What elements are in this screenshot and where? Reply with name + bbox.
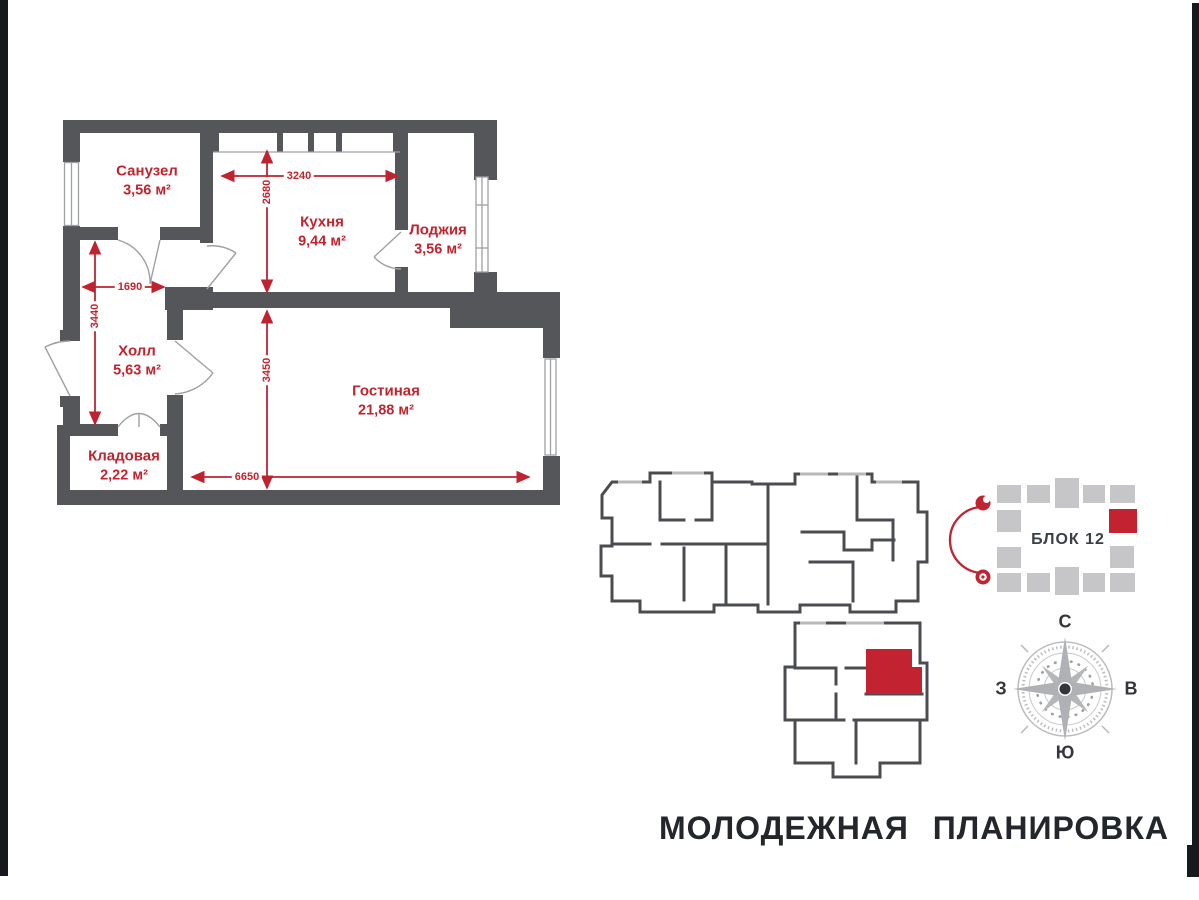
dimension-1690: 1690 bbox=[115, 281, 145, 293]
storage-door bbox=[118, 413, 160, 427]
room-area: 3,56 м² bbox=[409, 240, 467, 258]
room-name: Кладовая bbox=[88, 448, 160, 467]
room-area: 2,22 м² bbox=[88, 466, 160, 484]
room-label-living-room: Гостиная 21,88 м² bbox=[352, 383, 420, 420]
connector-dot-bottom bbox=[976, 570, 991, 585]
room-name: Санузел bbox=[116, 163, 178, 182]
balcony-door bbox=[374, 232, 401, 269]
room-label-loggia: Лоджия 3,56 м² bbox=[409, 222, 467, 259]
connector-dot-top bbox=[976, 496, 991, 511]
room-area: 5,63 м² bbox=[113, 361, 161, 379]
bathroom-door bbox=[118, 240, 160, 284]
compass-rose-icon bbox=[1013, 637, 1117, 741]
connector-arc bbox=[950, 496, 991, 585]
compass-label-west: З bbox=[995, 679, 1006, 700]
room-area: 3,56 м² bbox=[116, 181, 178, 199]
room-label-storage: Кладовая 2,22 м² bbox=[88, 448, 160, 485]
compass-label-south: Ю bbox=[1056, 743, 1075, 764]
block-red-square bbox=[1109, 509, 1137, 533]
plan-graphics bbox=[0, 0, 1199, 900]
room-name: Лоджия bbox=[409, 222, 467, 241]
compass-label-east: В bbox=[1125, 679, 1138, 700]
dimension-2680: 2680 bbox=[261, 177, 273, 207]
room-name: Гостиная bbox=[352, 383, 420, 402]
room-area: 9,44 м² bbox=[298, 232, 346, 250]
room-name: Кухня bbox=[298, 214, 346, 233]
page-title: МОЛОДЕЖНАЯ ПЛАНИРОВКА bbox=[654, 810, 1174, 847]
dimension-3450: 3450 bbox=[261, 355, 273, 385]
highlighted-unit bbox=[866, 649, 922, 694]
building-plan-upper-wing bbox=[601, 473, 927, 612]
kitchen-door bbox=[207, 246, 236, 289]
room-label-hall: Холл 5,63 м² bbox=[113, 343, 161, 380]
room-label-bathroom: Санузел 3,56 м² bbox=[116, 163, 178, 200]
room-name: Холл bbox=[113, 343, 161, 362]
dimension-6650: 6650 bbox=[232, 471, 262, 483]
dimension-3440: 3440 bbox=[89, 301, 101, 331]
room-area: 21,88 м² bbox=[352, 401, 420, 419]
dimension-3240: 3240 bbox=[284, 170, 314, 182]
flat-layout-page: Санузел 3,56 м² Кухня 9,44 м² Лоджия 3,5… bbox=[0, 0, 1199, 900]
block-label: БЛОК 12 bbox=[1031, 531, 1105, 549]
entrance-door bbox=[45, 341, 70, 396]
living-room-door bbox=[175, 341, 213, 394]
compass-label-north: С bbox=[1059, 612, 1072, 633]
building-plan-lower-block bbox=[785, 623, 927, 777]
room-label-kitchen: Кухня 9,44 м² bbox=[298, 214, 346, 251]
